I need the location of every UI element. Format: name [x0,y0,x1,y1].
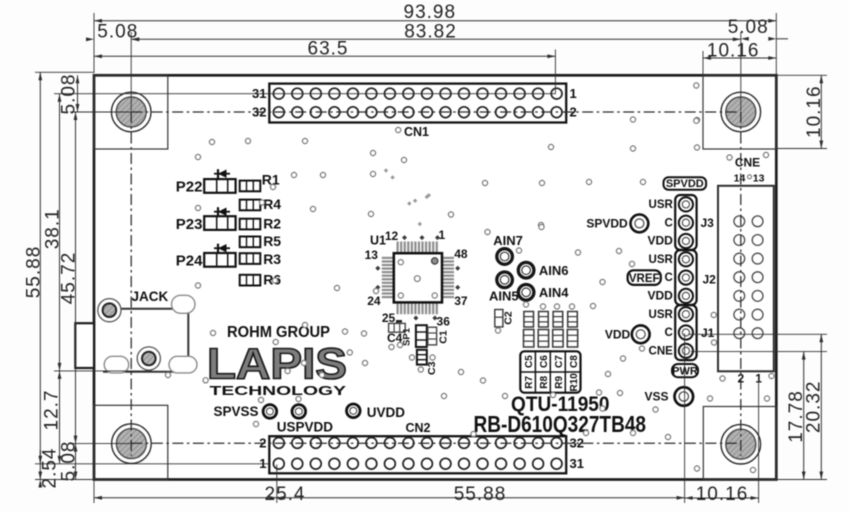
svg-text:12.7: 12.7 [42,390,63,431]
svg-text:93.98: 93.98 [404,2,457,23]
svg-text:C: C [664,327,672,339]
svg-text:C5: C5 [524,355,535,368]
svg-text:83.82: 83.82 [404,22,457,43]
svg-text:P23: P23 [176,216,203,233]
svg-text:CNE: CNE [649,345,674,357]
svg-text:USPVDD: USPVDD [277,419,334,434]
svg-text:10.16: 10.16 [696,484,749,505]
svg-text:25.4: 25.4 [265,484,306,505]
svg-text:C7: C7 [554,355,565,368]
svg-text:38.1: 38.1 [43,208,64,249]
svg-text:C6: C6 [539,355,550,368]
svg-text:24: 24 [367,294,381,308]
svg-text:R4: R4 [263,196,281,212]
svg-text:USR: USR [649,309,674,321]
svg-text:5.08: 5.08 [728,17,769,38]
svg-text:5.08: 5.08 [59,441,80,482]
svg-text:20.32: 20.32 [804,381,825,434]
svg-text:SP1: SP1 [402,327,413,346]
svg-text:55.88: 55.88 [454,484,507,505]
svg-text:63.5: 63.5 [308,38,349,59]
svg-text:ROHM GROUP: ROHM GROUP [227,324,330,341]
svg-text:R9: R9 [554,375,565,388]
svg-text:C3: C3 [426,361,438,375]
svg-text:R8: R8 [539,375,550,388]
svg-text:U1: U1 [370,233,386,247]
svg-text:J1: J1 [701,326,715,340]
svg-text:C8: C8 [569,355,580,368]
svg-text:1: 1 [438,228,445,242]
svg-text:AIN7: AIN7 [493,233,523,248]
svg-text:C1: C1 [438,330,450,344]
svg-text:13: 13 [753,173,765,185]
svg-text:VSS: VSS [644,389,668,403]
svg-text:55.88: 55.88 [24,246,45,299]
svg-text:R3: R3 [263,251,281,267]
svg-text:CNE: CNE [735,156,760,170]
svg-text:VDD: VDD [647,289,673,303]
svg-text:P22: P22 [176,178,203,195]
svg-text:CN1: CN1 [404,125,429,139]
svg-text:C: C [664,272,672,284]
svg-text:45.72: 45.72 [59,252,80,305]
svg-text:VDD: VDD [647,234,673,248]
svg-text:USR: USR [649,254,674,266]
svg-text:SPVDD: SPVDD [666,178,704,190]
svg-text:1: 1 [570,86,577,101]
svg-text:10.16: 10.16 [707,40,760,61]
svg-text:48: 48 [454,247,468,261]
svg-text:37: 37 [454,294,468,308]
svg-text:13: 13 [365,248,379,262]
svg-text:JACK: JACK [132,289,169,304]
svg-text:R2: R2 [263,215,281,231]
svg-text:J2: J2 [703,273,717,287]
svg-text:P24: P24 [176,253,203,270]
svg-text:R10: R10 [569,373,580,392]
svg-text:C: C [664,217,672,229]
svg-text:5.08: 5.08 [59,74,80,115]
svg-text:R5: R5 [263,233,281,249]
svg-text:RB-D610Q327TB48: RB-D610Q327TB48 [474,411,647,437]
svg-text:10.16: 10.16 [804,85,825,138]
svg-text:AIN6: AIN6 [539,263,569,278]
svg-text:USR: USR [649,199,674,211]
svg-text:31: 31 [570,456,584,471]
svg-text:VREF: VREF [629,273,660,285]
svg-text:5.08: 5.08 [97,22,138,43]
svg-text:VDD: VDD [605,327,631,341]
svg-text:R7: R7 [524,375,535,388]
svg-text:36: 36 [437,315,451,329]
svg-text:SPVDD: SPVDD [586,216,628,230]
svg-text:UVDD: UVDD [367,405,406,420]
svg-text:J3: J3 [701,216,715,230]
svg-text:AIN4: AIN4 [539,285,569,300]
svg-text:14: 14 [734,173,746,185]
svg-text:C2: C2 [503,311,515,325]
svg-text:CN2: CN2 [406,421,431,435]
svg-text:2.54: 2.54 [40,448,61,489]
svg-text:AIN5: AIN5 [489,289,519,304]
svg-text:TECHNOLOGY: TECHNOLOGY [210,383,347,398]
svg-text:12: 12 [385,229,399,243]
svg-text:LAPIS: LAPIS [207,340,347,389]
svg-text:SPVSS: SPVSS [213,404,258,419]
